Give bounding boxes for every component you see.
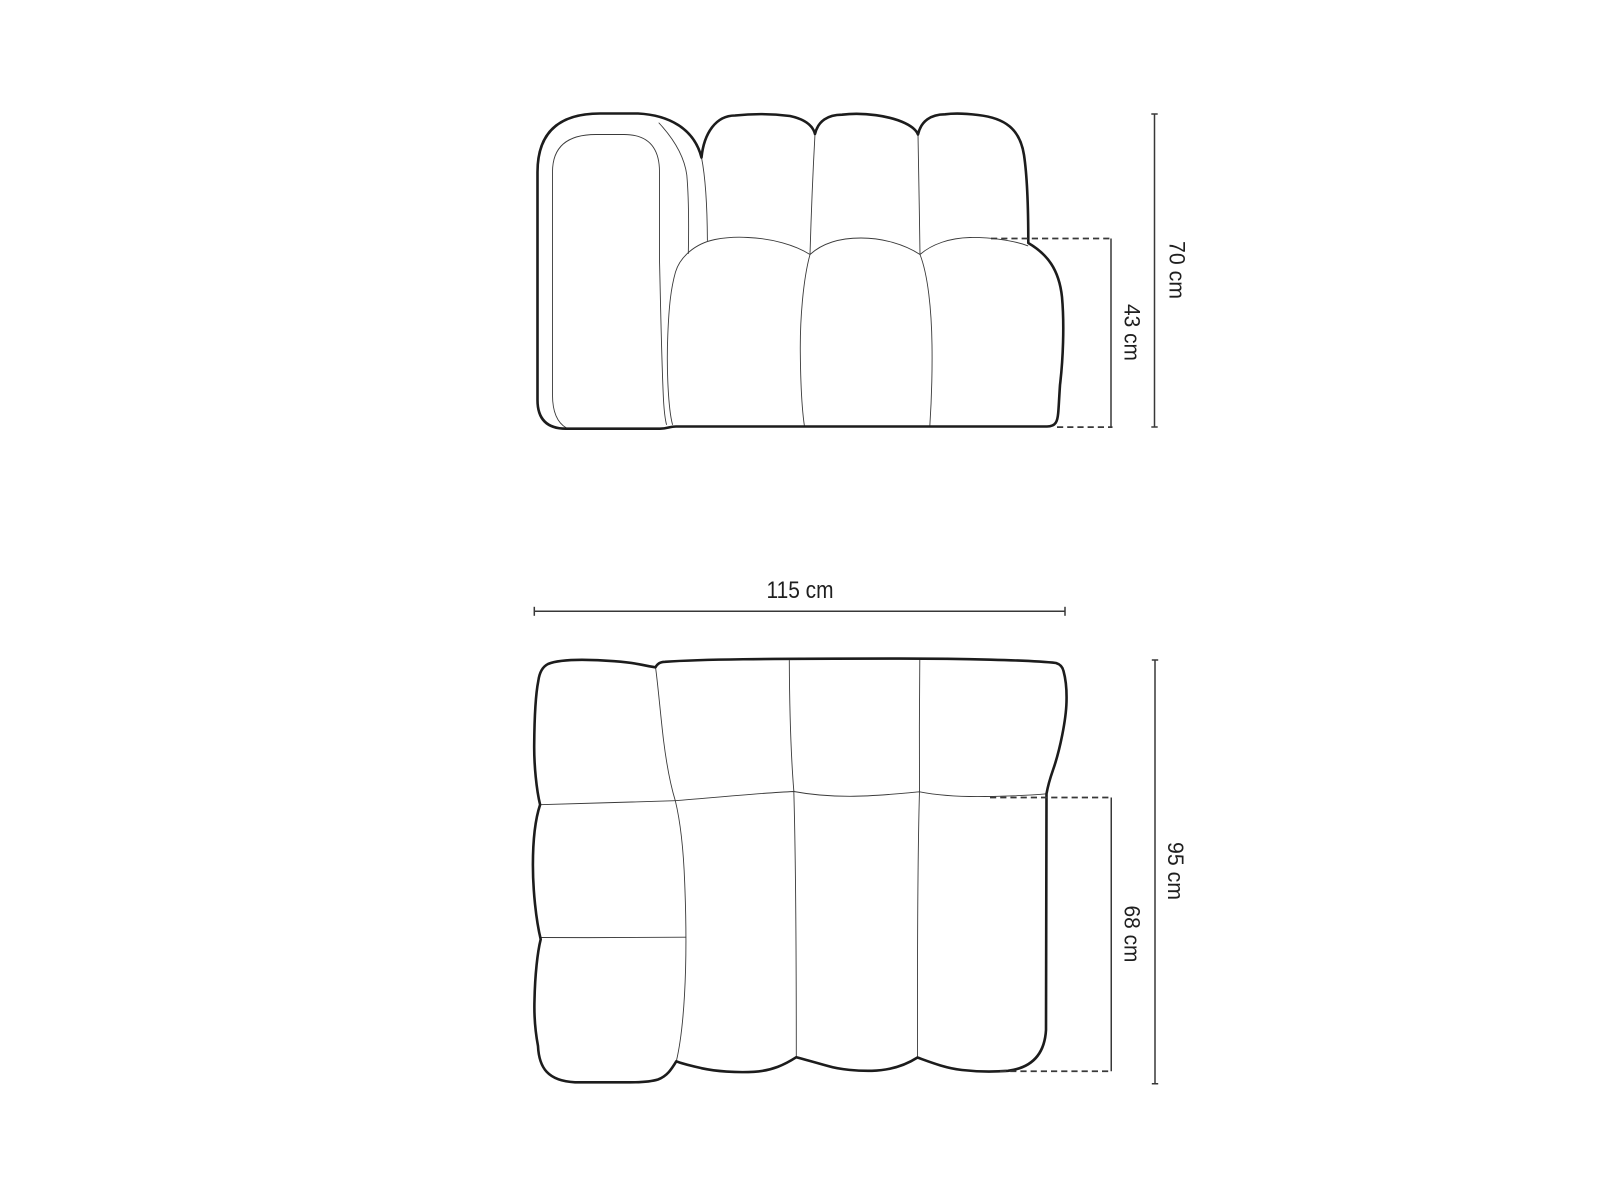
svg-text:70 cm: 70 cm — [1165, 241, 1190, 299]
svg-text:43 cm: 43 cm — [1120, 304, 1145, 361]
svg-text:68 cm: 68 cm — [1120, 906, 1145, 963]
svg-text:115 cm: 115 cm — [767, 577, 834, 604]
svg-text:95 cm: 95 cm — [1163, 842, 1188, 900]
